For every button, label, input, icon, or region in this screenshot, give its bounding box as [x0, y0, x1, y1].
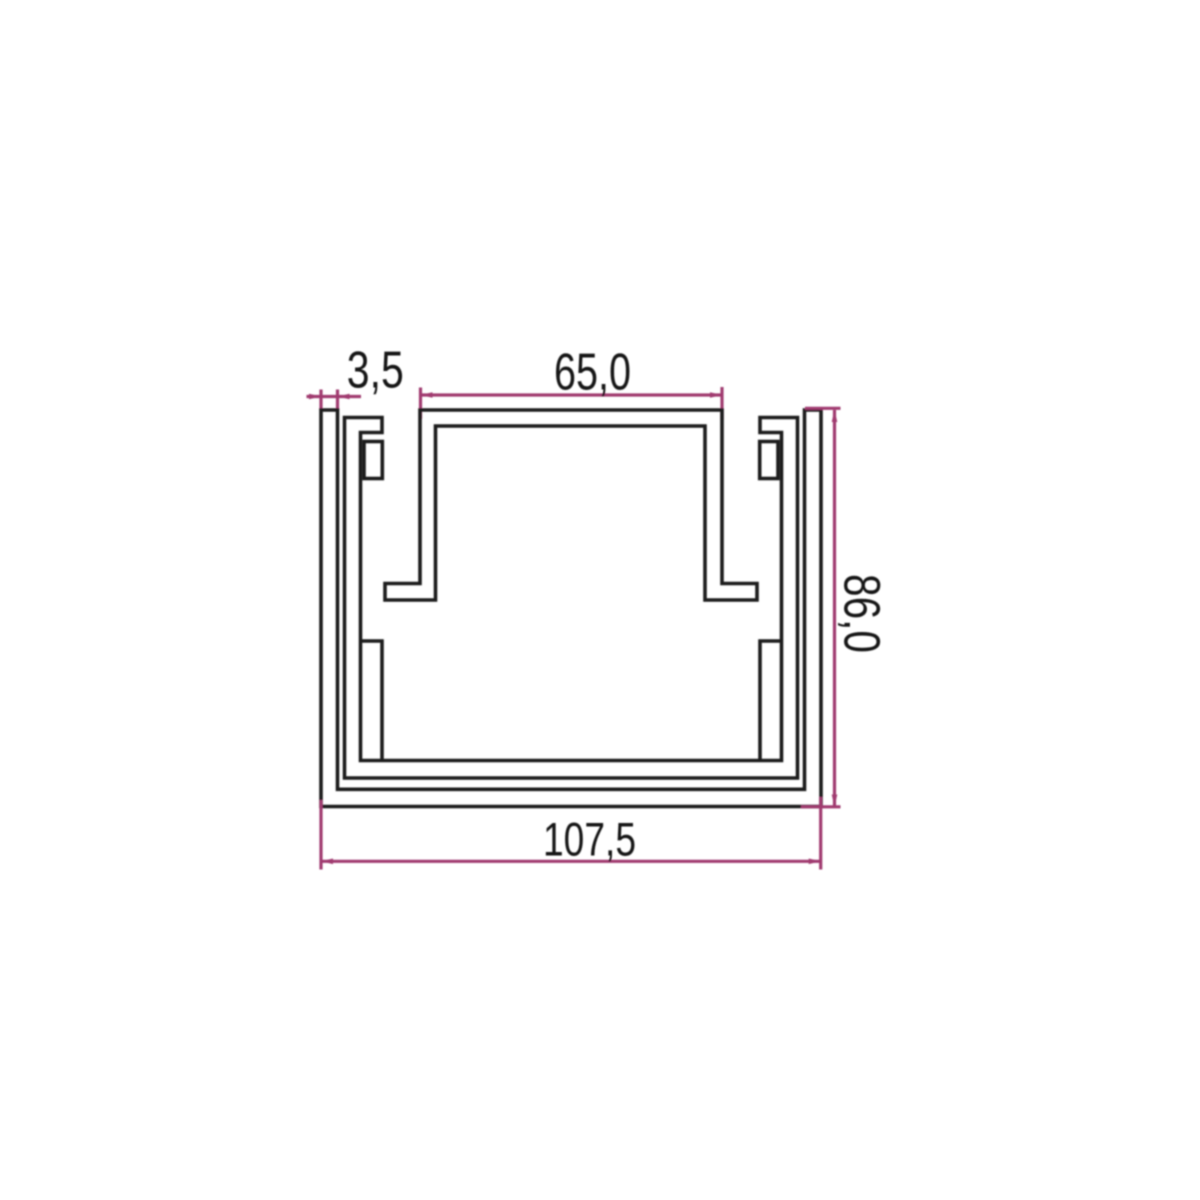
svg-text:65,0: 65,0 [554, 344, 631, 402]
svg-text:86,0: 86,0 [834, 574, 891, 653]
svg-text:107,5: 107,5 [543, 813, 636, 866]
svg-text:3,5: 3,5 [347, 342, 404, 400]
